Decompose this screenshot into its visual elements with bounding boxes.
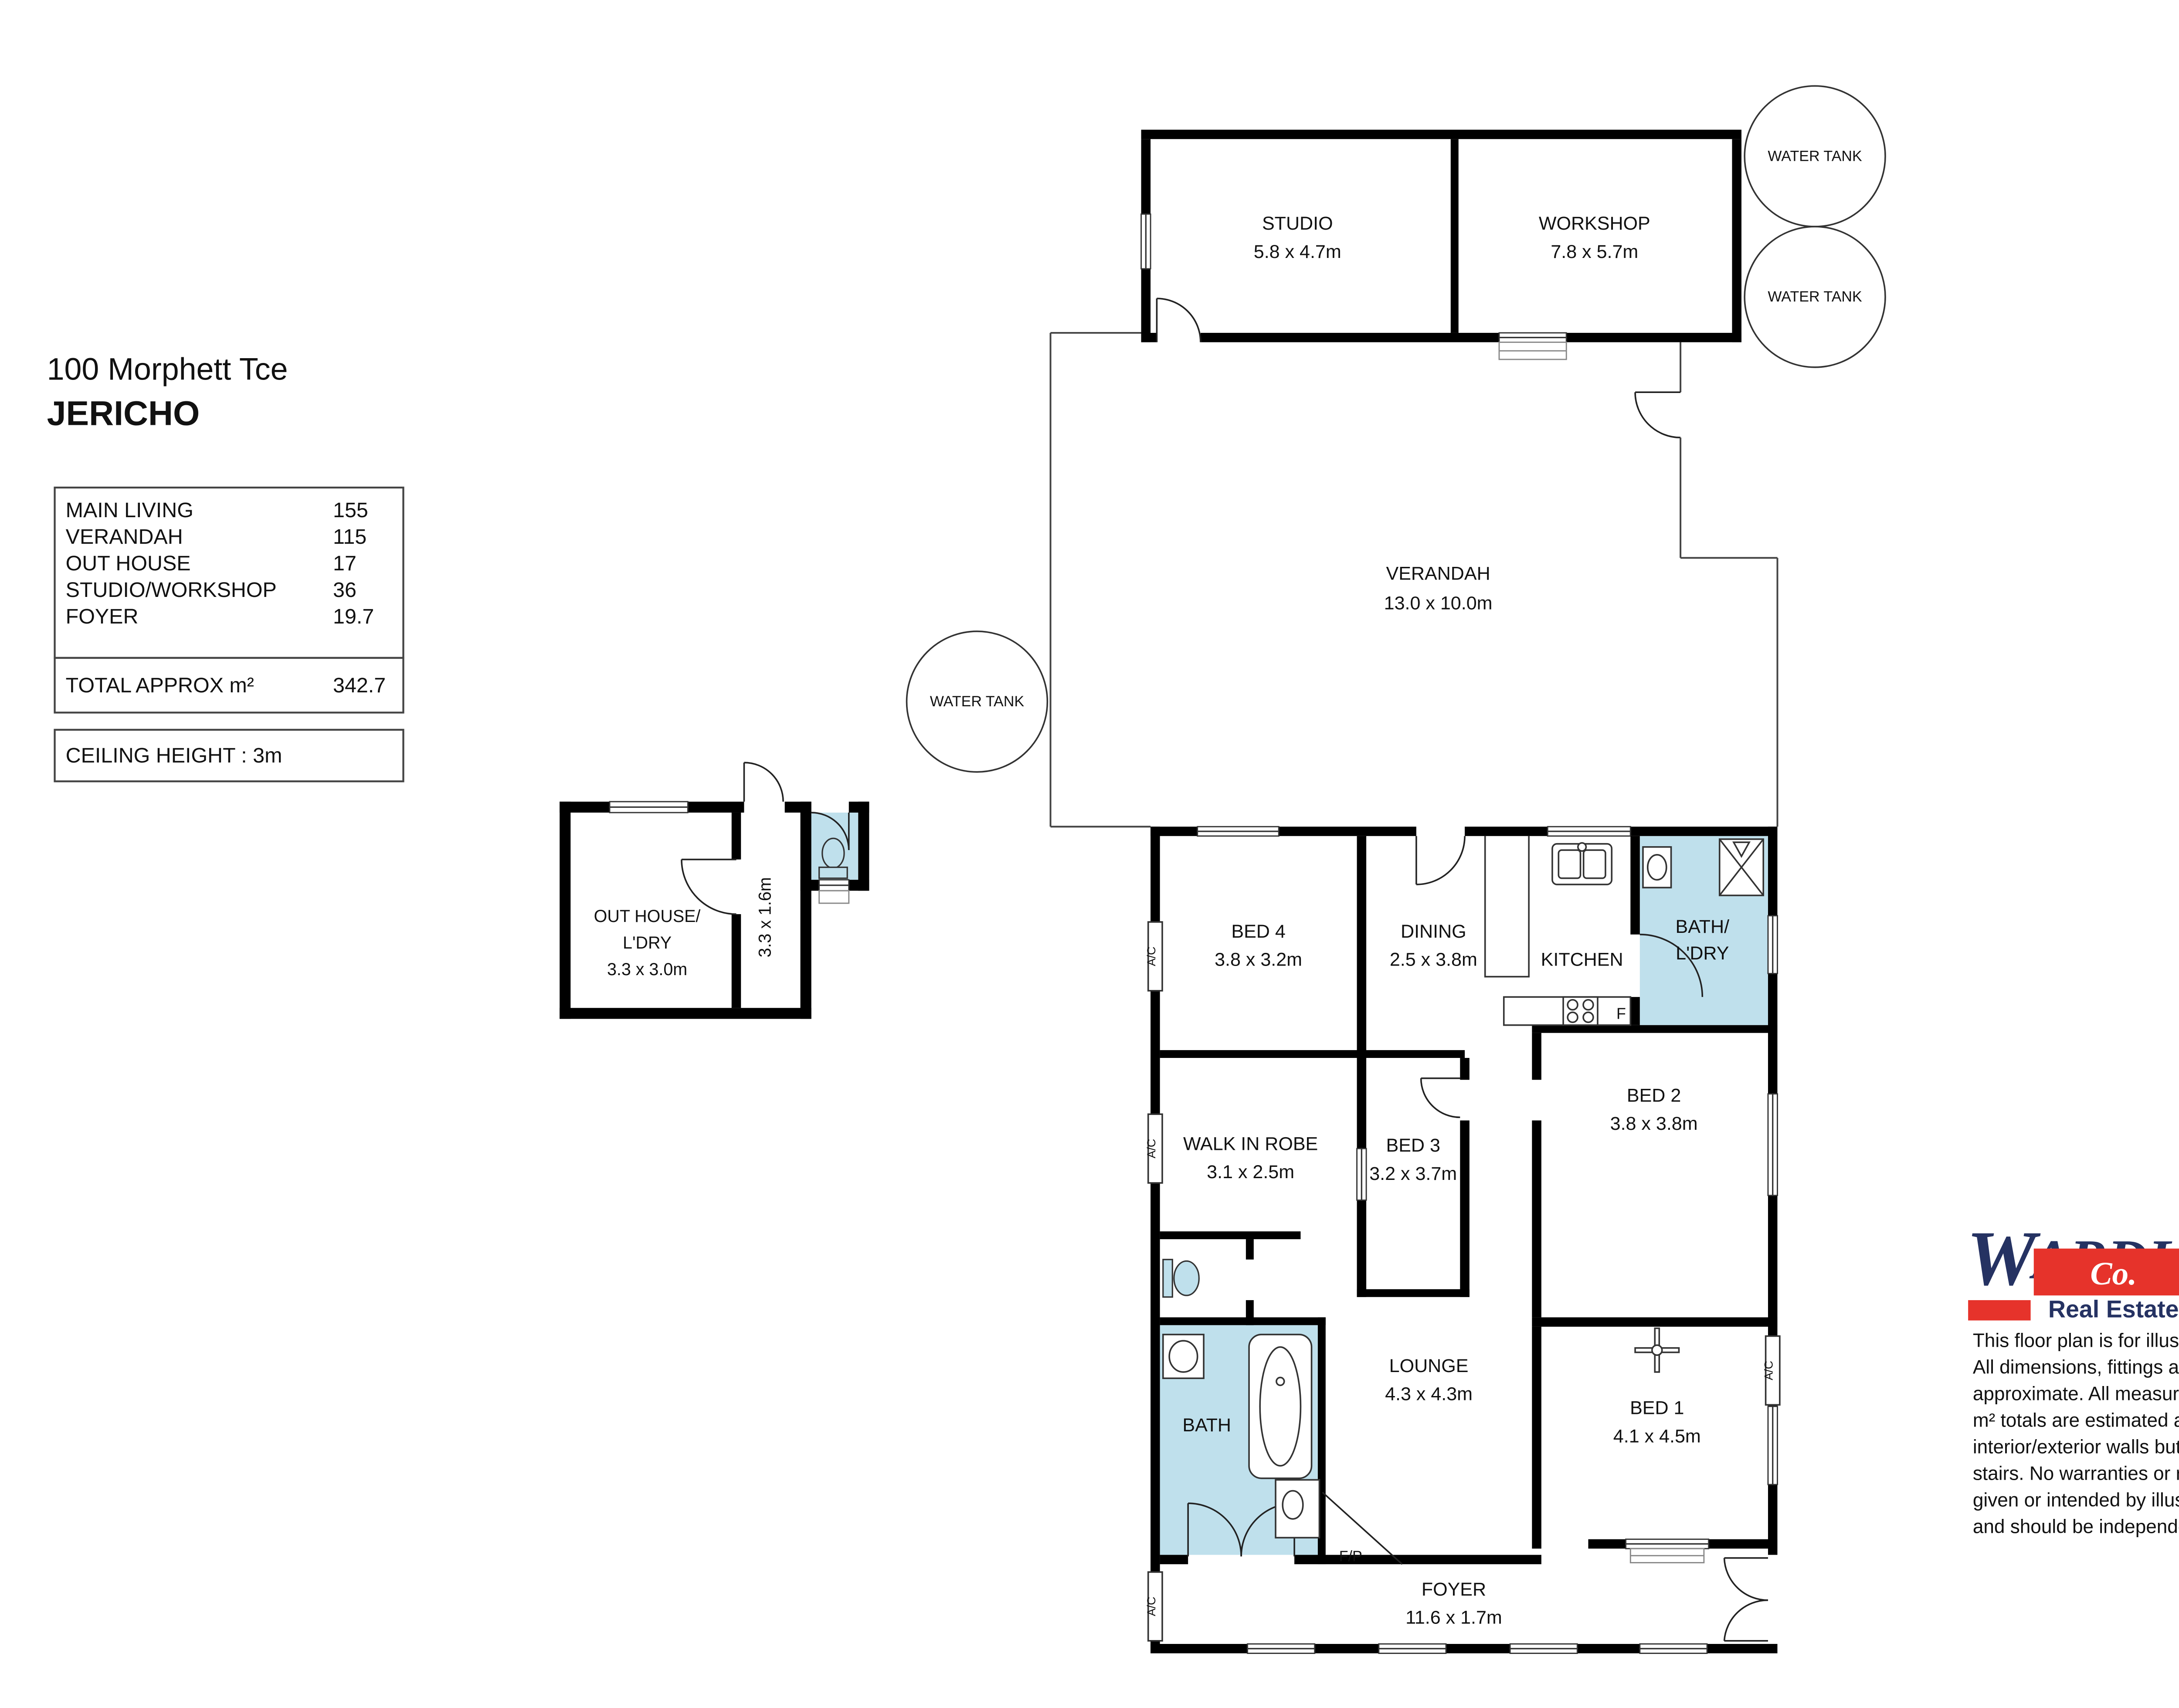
window bbox=[1768, 916, 1778, 974]
fridge-label: F bbox=[1616, 1005, 1626, 1022]
window bbox=[1247, 1644, 1314, 1654]
disclaimer-line: and should be independently verified. bbox=[1973, 1516, 2179, 1537]
window bbox=[1198, 827, 1279, 836]
ceiling-note: CEILING HEIGHT : 3m bbox=[66, 744, 282, 767]
row-label: MAIN LIVING bbox=[66, 498, 193, 522]
total-value: 342.7 bbox=[333, 674, 386, 697]
window bbox=[1640, 1644, 1707, 1654]
row-value: 17 bbox=[333, 552, 356, 575]
workshop-dims: 7.8 x 5.7m bbox=[1551, 241, 1638, 262]
bed1-label: BED 1 bbox=[1630, 1398, 1684, 1419]
table-row: STUDIO/WORKSHOP 36 bbox=[66, 578, 356, 602]
robe-opening bbox=[1357, 1149, 1367, 1200]
bath-label: BATH bbox=[1182, 1415, 1231, 1436]
ac-unit: A/C bbox=[1762, 1336, 1780, 1405]
disclaimer-line: approximate. All measurements are in met… bbox=[1973, 1383, 2179, 1404]
row-label: VERANDAH bbox=[66, 525, 183, 549]
property-address: 100 Morphett Tce bbox=[47, 352, 288, 387]
table-row: MAIN LIVING 155 bbox=[66, 498, 368, 522]
water-tank-label: WATER TANK bbox=[1768, 288, 1862, 305]
verandah: VERANDAH 13.0 x 10.0m bbox=[1051, 333, 1778, 827]
walk-in-robe-dims: 3.1 x 2.5m bbox=[1207, 1162, 1294, 1183]
bed3-label: BED 3 bbox=[1386, 1135, 1440, 1156]
studio-door-arc bbox=[1157, 298, 1200, 342]
floor-plan-canvas: 100 Morphett Tce JERICHO MAIN LIVING 155… bbox=[0, 0, 2179, 1708]
studio-window bbox=[1141, 214, 1151, 269]
kitchen-label: KITCHEN bbox=[1541, 949, 1623, 970]
bed4-dims: 3.8 x 3.2m bbox=[1215, 949, 1302, 970]
window bbox=[1626, 1539, 1709, 1563]
verandah-label: VERANDAH bbox=[1386, 563, 1490, 584]
fireplace-icon bbox=[1323, 1492, 1402, 1564]
disclaimer-line: interior/exterior walls but not eaves or… bbox=[1973, 1436, 2179, 1457]
outhouse-corridor-door-arc bbox=[744, 762, 783, 802]
table-row: OUT HOUSE 17 bbox=[66, 552, 356, 575]
bed3-dims: 3.2 x 3.7m bbox=[1369, 1163, 1457, 1184]
row-label: STUDIO/WORKSHOP bbox=[66, 578, 277, 602]
ac-unit: A/C bbox=[1145, 922, 1162, 991]
sink-icon bbox=[1552, 843, 1612, 884]
bathtub-icon bbox=[1249, 1335, 1311, 1478]
vanity-icon bbox=[1643, 847, 1671, 888]
stove-icon bbox=[1563, 997, 1598, 1025]
bath-ldry-label-1: BATH/ bbox=[1676, 916, 1730, 937]
verandah-dims: 13.0 x 10.0m bbox=[1384, 593, 1493, 614]
row-value: 36 bbox=[333, 578, 356, 602]
ac-label: A/C bbox=[1762, 1361, 1775, 1380]
water-tank-label: WATER TANK bbox=[1768, 148, 1862, 164]
info-panel: 100 Morphett Tce JERICHO MAIN LIVING 155… bbox=[47, 352, 404, 782]
bed1-dims: 4.1 x 4.5m bbox=[1613, 1426, 1701, 1447]
studio-dims: 5.8 x 4.7m bbox=[1254, 241, 1341, 262]
workshop-window bbox=[1499, 333, 1566, 359]
logo-bar-left bbox=[1968, 1300, 2030, 1321]
disclaimer-line: given or intended by illustrator, agent … bbox=[1973, 1489, 2179, 1511]
foyer-french-door-arcs bbox=[1724, 1558, 1768, 1641]
disclaimer-line: All dimensions, fittings and fixtures ar… bbox=[1973, 1357, 2179, 1378]
walk-in-robe-label: WALK IN ROBE bbox=[1183, 1134, 1318, 1155]
ceiling-fan-icon bbox=[1635, 1328, 1679, 1372]
ac-label: A/C bbox=[1145, 1596, 1158, 1616]
outhouse-label-2: L'DRY bbox=[623, 933, 672, 952]
disclaimer-line: stairs. No warranties or representations… bbox=[1973, 1463, 2179, 1484]
studio-workshop-building: STUDIO 5.8 x 4.7m WORKSHOP 7.8 x 5.7m bbox=[1141, 130, 1741, 359]
vanity-icon bbox=[1163, 1335, 1204, 1378]
water-tank-label: WATER TANK bbox=[930, 693, 1025, 710]
row-value: 155 bbox=[333, 498, 368, 522]
studio-walls bbox=[1141, 130, 1741, 342]
table-row: VERANDAH 115 bbox=[66, 525, 367, 549]
foyer-dims: 11.6 x 1.7m bbox=[1405, 1607, 1502, 1628]
step bbox=[819, 891, 849, 903]
lounge-dims: 4.3 x 4.3m bbox=[1385, 1383, 1473, 1404]
studio-label: STUDIO bbox=[1262, 213, 1333, 234]
bed3-door-arc bbox=[1421, 1078, 1460, 1118]
row-label: OUT HOUSE bbox=[66, 552, 191, 575]
workshop-label: WORKSHOP bbox=[1539, 213, 1650, 234]
row-value: 115 bbox=[333, 525, 367, 549]
disclaimer: This floor plan is for illustrative purp… bbox=[1973, 1330, 2179, 1538]
toilet-icon bbox=[1163, 1260, 1199, 1297]
logo-co-text: Co. bbox=[2090, 1256, 2137, 1292]
ac-unit: A/C bbox=[1145, 1114, 1162, 1183]
dining-dims: 2.5 x 3.8m bbox=[1390, 949, 1477, 970]
window bbox=[1548, 827, 1630, 836]
row-label: FOYER bbox=[66, 605, 139, 628]
ac-unit: A/C bbox=[1145, 1572, 1162, 1641]
lounge-label: LOUNGE bbox=[1389, 1356, 1469, 1376]
disclaimer-line: m² totals are estimated and include bbox=[1973, 1410, 2179, 1431]
outhouse-dims: 3.3 x 3.0m bbox=[607, 960, 687, 979]
window bbox=[1510, 1644, 1577, 1654]
logo-letter-w: W bbox=[1967, 1215, 2041, 1301]
ac-label: A/C bbox=[1145, 1139, 1158, 1159]
table-row: FOYER 19.7 bbox=[66, 605, 374, 628]
outhouse-room-door-arc bbox=[682, 860, 737, 915]
bed2-dims: 3.8 x 3.8m bbox=[1610, 1113, 1698, 1134]
wc-window bbox=[819, 880, 849, 903]
verandah-door-arc bbox=[1635, 392, 1680, 437]
row-value: 19.7 bbox=[333, 605, 374, 628]
agency-logo: W ARDL E Co. Real Estate bbox=[1967, 1215, 2179, 1322]
window bbox=[1768, 1094, 1778, 1196]
area-table: MAIN LIVING 155 VERANDAH 115 OUT HOUSE 1… bbox=[66, 498, 374, 628]
logo-tagline: Real Estate bbox=[2048, 1295, 2179, 1322]
shower-icon bbox=[1720, 839, 1763, 895]
disclaimer-line: This floor plan is for illustrative purp… bbox=[1973, 1330, 2179, 1352]
window bbox=[1379, 1644, 1446, 1654]
foyer-label: FOYER bbox=[1422, 1579, 1486, 1600]
total-label: TOTAL APPROX m² bbox=[66, 674, 254, 697]
ac-label: A/C bbox=[1145, 947, 1158, 966]
window bbox=[1768, 1406, 1778, 1484]
bed4-label: BED 4 bbox=[1231, 921, 1285, 942]
property-suburb: JERICHO bbox=[47, 394, 200, 433]
outhouse-block: OUT HOUSE/ L'DRY 3.3 x 3.0m 3.3 x 1.6m bbox=[560, 762, 869, 1019]
outhouse-window bbox=[610, 802, 688, 813]
bed2-label: BED 2 bbox=[1627, 1085, 1681, 1106]
laundry-fixture-icon bbox=[1276, 1480, 1319, 1538]
main-house: F bbox=[1145, 827, 1780, 1653]
dining-label: DINING bbox=[1401, 921, 1466, 942]
bath-ldry-label-2: L'DRY bbox=[1676, 943, 1729, 964]
fireplace-label: F/P bbox=[1339, 1548, 1362, 1565]
dining-door-arc bbox=[1416, 836, 1465, 884]
outhouse-corridor-dims: 3.3 x 1.6m bbox=[755, 877, 774, 957]
outhouse-label-1: OUT HOUSE/ bbox=[594, 907, 701, 926]
